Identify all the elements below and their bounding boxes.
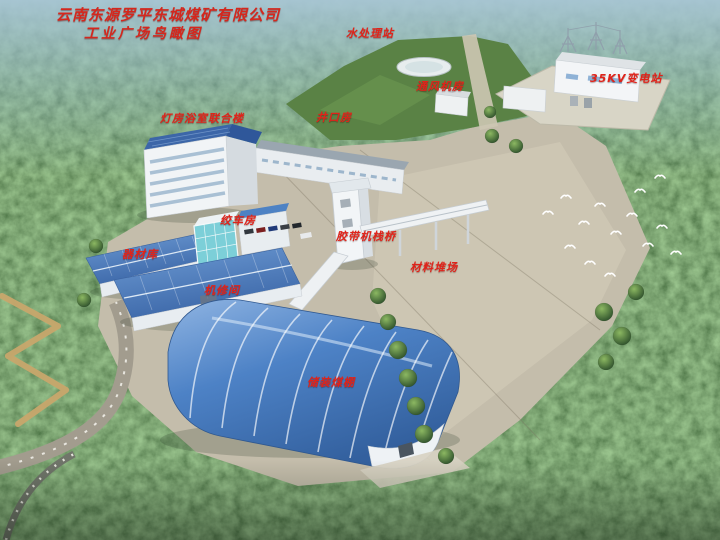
bottom-vignette <box>0 460 720 540</box>
pond <box>397 58 451 77</box>
scene-canvas <box>0 0 720 540</box>
aerial-rendering: 云南东源罗平东城煤矿有限公司 工业广场鸟瞰图 水处理站 通风机房 35KV变电站… <box>0 0 720 540</box>
ventilation-fan-house <box>435 87 471 116</box>
